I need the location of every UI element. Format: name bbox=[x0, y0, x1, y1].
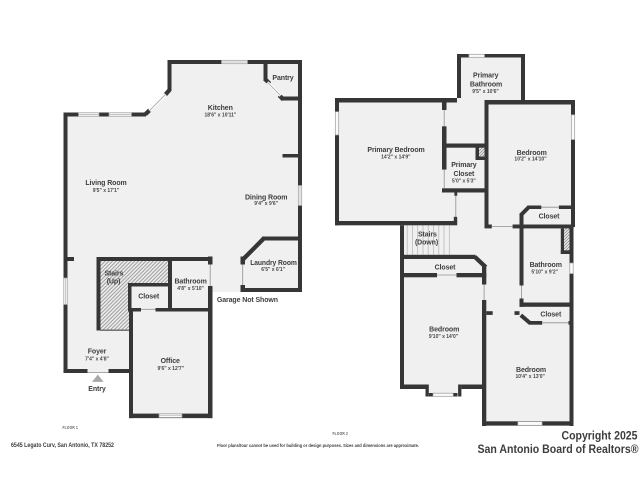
svg-text:Closet: Closet bbox=[539, 214, 561, 221]
svg-text:9'6" x 12'7": 9'6" x 12'7" bbox=[158, 366, 185, 372]
svg-text:7'4" x 4'8": 7'4" x 4'8" bbox=[85, 356, 109, 362]
svg-text:(Up): (Up) bbox=[107, 279, 121, 286]
svg-text:Foyer: Foyer bbox=[88, 349, 107, 356]
svg-text:Closet: Closet bbox=[138, 293, 160, 300]
svg-text:Garage Not Shown: Garage Not Shown bbox=[217, 297, 278, 304]
svg-text:6'5" x 6'1": 6'5" x 6'1" bbox=[261, 267, 285, 273]
svg-text:Entry: Entry bbox=[88, 386, 106, 393]
svg-text:4'8" x 5'10": 4'8" x 5'10" bbox=[177, 286, 204, 292]
svg-text:14'2" x 14'9": 14'2" x 14'9" bbox=[381, 155, 411, 161]
svg-text:Pantry: Pantry bbox=[272, 75, 293, 82]
svg-text:9'5" x 10'6": 9'5" x 10'6" bbox=[472, 89, 499, 95]
svg-text:Bedroom: Bedroom bbox=[429, 327, 459, 334]
svg-text:Closet: Closet bbox=[454, 171, 476, 178]
svg-text:(Down): (Down) bbox=[415, 239, 438, 246]
svg-text:Bathroom: Bathroom bbox=[470, 82, 502, 89]
svg-text:Kitchen: Kitchen bbox=[208, 105, 233, 112]
svg-text:6545 Legato Curv, San Antonio,: 6545 Legato Curv, San Antonio, TX 78252 bbox=[11, 442, 114, 449]
svg-text:9'5" x 17'1": 9'5" x 17'1" bbox=[93, 188, 120, 194]
svg-text:Primary: Primary bbox=[451, 162, 477, 169]
svg-text:Bedroom: Bedroom bbox=[516, 367, 546, 374]
svg-text:5'0" x 5'3": 5'0" x 5'3" bbox=[452, 179, 476, 185]
svg-text:FLOOR 2: FLOOR 2 bbox=[333, 431, 349, 436]
svg-text:9'4" x 9'6": 9'4" x 9'6" bbox=[254, 201, 278, 207]
svg-text:Office: Office bbox=[161, 358, 180, 365]
svg-text:5'10" x 9'2": 5'10" x 9'2" bbox=[531, 269, 558, 275]
svg-text:Copyright 2025: Copyright 2025 bbox=[562, 431, 639, 443]
svg-text:Floor plans/tour cannot be use: Floor plans/tour cannot be used for buil… bbox=[217, 443, 419, 448]
svg-text:10'4" x 13'0": 10'4" x 13'0" bbox=[516, 374, 546, 380]
svg-text:Stairs: Stairs bbox=[418, 232, 437, 239]
svg-text:FLOOR 1: FLOOR 1 bbox=[63, 425, 79, 430]
svg-text:Primary Bedroom: Primary Bedroom bbox=[367, 147, 424, 154]
svg-text:Bathroom: Bathroom bbox=[174, 279, 206, 286]
svg-text:10'2" x 14'10": 10'2" x 14'10" bbox=[514, 156, 547, 162]
svg-text:Closet: Closet bbox=[540, 311, 562, 318]
svg-text:Closet: Closet bbox=[435, 264, 457, 271]
svg-text:Stairs: Stairs bbox=[104, 271, 123, 278]
svg-text:Primary: Primary bbox=[473, 72, 499, 79]
svg-text:9'10" x 14'0": 9'10" x 14'0" bbox=[429, 334, 459, 340]
svg-text:18'6" x 10'11": 18'6" x 10'11" bbox=[204, 112, 236, 118]
svg-text:Laundry Room: Laundry Room bbox=[250, 260, 297, 267]
svg-text:Living Room: Living Room bbox=[85, 180, 126, 187]
svg-text:Bathroom: Bathroom bbox=[530, 262, 562, 269]
svg-text:San Antonio Board of Realtors®: San Antonio Board of Realtors® bbox=[478, 444, 639, 456]
